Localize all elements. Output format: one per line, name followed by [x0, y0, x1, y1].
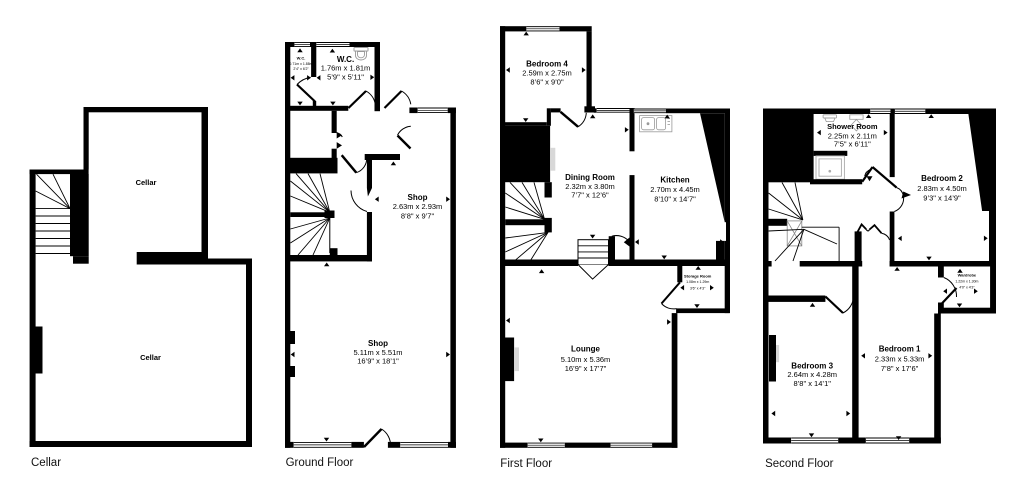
svg-text:2.83m x 4.50m: 2.83m x 4.50m	[917, 184, 967, 193]
svg-text:Cellar: Cellar	[140, 353, 161, 362]
svg-text:5.10m x 5.36m: 5.10m x 5.36m	[561, 355, 611, 364]
svg-text:W.C.: W.C.	[297, 55, 306, 60]
svg-text:2.33m x 5.33m: 2.33m x 5.33m	[875, 354, 925, 363]
svg-text:8’8" x 9’7": 8’8" x 9’7"	[401, 211, 435, 220]
svg-text:Bedroom 3: Bedroom 3	[791, 362, 833, 371]
svg-text:16’9" x 18’1": 16’9" x 18’1"	[357, 356, 399, 365]
svg-text:Lounge: Lounge	[571, 345, 600, 354]
svg-text:7’7" x 12’6": 7’7" x 12’6"	[571, 191, 609, 200]
svg-text:Second Floor: Second Floor	[765, 458, 834, 470]
svg-text:16’9" x 17’7": 16’9" x 17’7"	[565, 364, 607, 373]
svg-text:4'0" x 4'3": 4'0" x 4'3"	[959, 286, 975, 290]
svg-text:Ground Floor: Ground Floor	[286, 457, 354, 469]
svg-text:2.63m x 2.93m: 2.63m x 2.93m	[393, 202, 443, 211]
svg-text:1.08m x 1.29m: 1.08m x 1.29m	[686, 280, 709, 284]
svg-text:First Floor: First Floor	[500, 458, 552, 470]
svg-text:7’5" x 6’11": 7’5" x 6’11"	[834, 140, 871, 149]
svg-text:0.71m x 1.88m: 0.71m x 1.88m	[289, 62, 312, 66]
svg-text:Dining Room: Dining Room	[565, 173, 615, 182]
svg-text:Storage Room: Storage Room	[684, 273, 712, 278]
svg-text:2'4" x 6'2": 2'4" x 6'2"	[293, 67, 309, 71]
svg-text:Cellar: Cellar	[31, 457, 61, 469]
svg-text:5’9" x 5’11": 5’9" x 5’11"	[327, 73, 364, 82]
svg-text:8’6" x 9’0": 8’6" x 9’0"	[530, 77, 564, 86]
svg-text:Shower Room: Shower Room	[827, 122, 878, 131]
svg-text:Kitchen: Kitchen	[660, 176, 689, 185]
svg-text:7’8" x 17’6": 7’8" x 17’6"	[881, 364, 919, 373]
svg-text:1.22m x 1.30m: 1.22m x 1.30m	[955, 280, 978, 284]
svg-text:2.70m x 4.45m: 2.70m x 4.45m	[650, 185, 700, 194]
svg-text:9’3" x 14’9": 9’3" x 14’9"	[923, 193, 961, 202]
svg-text:Shop: Shop	[368, 339, 388, 348]
svg-text:Bedroom 4: Bedroom 4	[526, 60, 568, 69]
svg-text:Bedroom 2: Bedroom 2	[921, 174, 963, 183]
svg-text:Shop: Shop	[408, 193, 428, 202]
svg-text:Wardrobe: Wardrobe	[958, 272, 977, 277]
svg-text:Bedroom 1: Bedroom 1	[879, 345, 921, 354]
svg-text:3'6" x 4'3": 3'6" x 4'3"	[690, 286, 706, 290]
svg-text:8’8" x 14’1": 8’8" x 14’1"	[793, 379, 831, 388]
svg-text:Cellar: Cellar	[136, 178, 157, 187]
svg-text:8’10" x 14’7": 8’10" x 14’7"	[654, 195, 696, 204]
svg-text:2.59m x 2.75m: 2.59m x 2.75m	[522, 69, 572, 78]
svg-text:1.76m x 1.81m: 1.76m x 1.81m	[321, 63, 371, 72]
